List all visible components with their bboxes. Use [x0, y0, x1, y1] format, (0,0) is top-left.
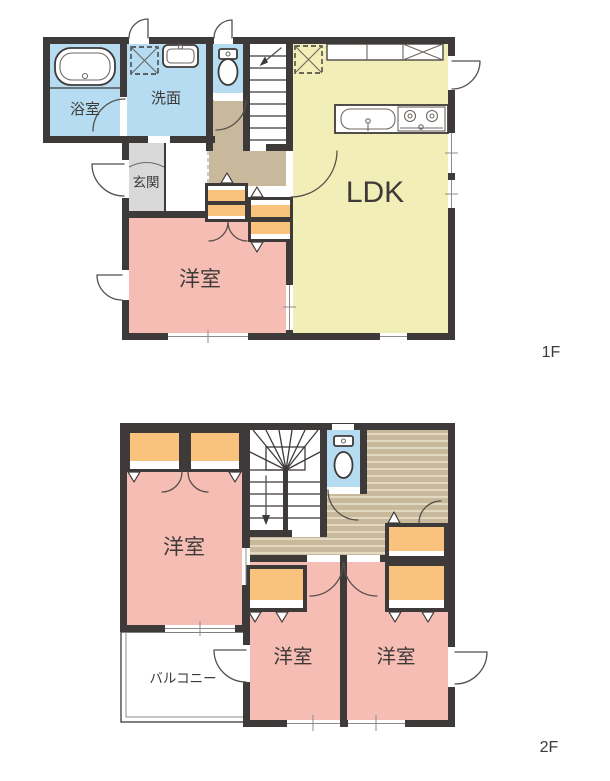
label-bedroom-2f-left: 洋室 [163, 536, 205, 559]
vanity-sink-icon [163, 45, 198, 67]
label-balcony: バルコニー [149, 671, 216, 686]
toilet-icon-2f [334, 436, 353, 478]
closet-2f-center [246, 565, 307, 612]
label-washroom: 洗面 [151, 90, 181, 107]
floor-plan-page: 浴室 洗面 玄関 洋室 LDK 1F [0, 0, 610, 781]
label-bathroom: 浴室 [70, 101, 100, 118]
closet-2f-left-a [127, 430, 182, 472]
closet-1f-a [205, 183, 248, 222]
label-entrance: 玄関 [133, 174, 160, 190]
label-floor-1f: 1F [542, 344, 561, 361]
kitchen-counter-icon [335, 105, 448, 133]
floor-plan-2f: 洋室 洋室 洋室 バルコニー 2F [120, 423, 559, 756]
label-bedroom-1f: 洋室 [179, 268, 221, 291]
label-bedroom-2f-right: 洋室 [376, 646, 415, 668]
floor-plan-1f: 浴室 洗面 玄関 洋室 LDK 1F [43, 19, 561, 361]
closet-1f-b [248, 197, 293, 242]
closet-2f-hall [385, 523, 448, 560]
label-floor-2f: 2F [540, 739, 559, 756]
closet-2f-right [385, 562, 448, 612]
toilet-icon-1f [219, 49, 238, 85]
hall-1f [213, 100, 243, 151]
label-bedroom-2f-center: 洋室 [273, 646, 312, 668]
floor-plan-drawing: 浴室 洗面 玄関 洋室 LDK 1F [0, 0, 610, 781]
closet-2f-left-b [188, 430, 242, 472]
bathtub-icon [50, 48, 120, 88]
label-ldk: LDK [346, 176, 404, 209]
hall-1f-lower [209, 151, 286, 186]
kitchen-cabinet-icon [327, 44, 443, 60]
corridor-1f [166, 143, 209, 211]
